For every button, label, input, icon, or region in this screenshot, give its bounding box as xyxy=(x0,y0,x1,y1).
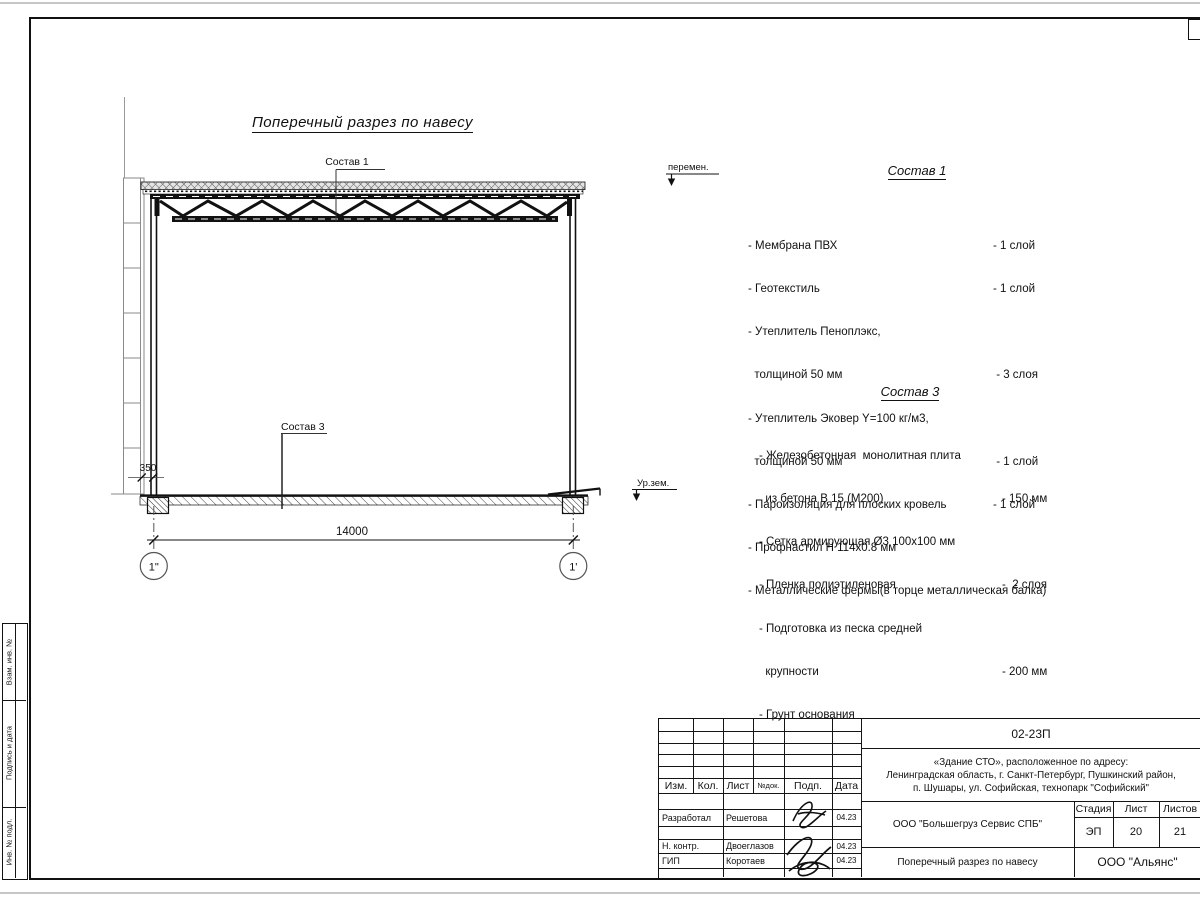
drawing-sheet: Поперечный разрез по навесу xyxy=(0,0,1200,900)
roof-layers xyxy=(141,182,585,194)
list-item: - Железобетонная монолитная плита xyxy=(759,449,961,463)
title-block: Изм. Кол. Лист №док. Подп. Дата Разработ… xyxy=(658,718,1200,880)
peremen-label: перемен. xyxy=(668,162,709,173)
list-item: - Подготовка из песка средней xyxy=(759,622,961,636)
dim-350-label: 350 xyxy=(140,463,157,474)
adjacent-wall xyxy=(111,97,144,494)
signature-razrabotal xyxy=(793,802,826,828)
list-item: - Геотекстиль- 1 слой xyxy=(748,282,1046,296)
roof-truss xyxy=(150,194,580,222)
list-item: толщиной 50 мм - 3 слоя xyxy=(748,368,1046,382)
level-mark-ground: Ур.зем. xyxy=(632,478,677,501)
list-item: - Пленка полиэтиленовая- 2 слоя xyxy=(759,578,961,592)
sostav3-heading: Состав 3 xyxy=(845,384,975,401)
list-item: крупности- 200 мм xyxy=(759,665,961,679)
list-item: из бетона В 15 (М200)- 150 мм xyxy=(759,492,961,506)
axis-left-label: 1" xyxy=(149,562,159,574)
dim-14000-label: 14000 xyxy=(336,526,368,538)
dimension-14000: 14000 1" 1' xyxy=(140,506,587,580)
signature-gip xyxy=(787,838,831,876)
list-item: - Мембрана ПВХ- 1 слой xyxy=(748,239,1046,253)
level-mark-peremen: перемен. xyxy=(666,162,719,186)
callout-sostav1-label: Состав 1 xyxy=(325,156,369,168)
sostav3-list: - Железобетонная монолитная плита из бет… xyxy=(759,420,961,751)
signatures xyxy=(659,719,1199,877)
sostav1-heading: Состав 1 xyxy=(852,163,982,180)
left-margin-column: Взам. инв. № Подпись и дата Инв. № подл. xyxy=(2,623,28,880)
podpis-data-cell: Подпись и дата xyxy=(3,700,15,807)
left-footing xyxy=(148,498,169,514)
callout-sostav3-label: Состав 3 xyxy=(281,421,325,433)
floor-slab xyxy=(140,489,600,514)
vzam-inv-cell: Взам. инв. № xyxy=(3,624,15,700)
list-item: - Утеплитель Пеноплэкс, xyxy=(748,325,1046,339)
list-item: - Сетка армирующая Ø3 100х100 мм xyxy=(759,535,961,549)
columns xyxy=(151,199,576,505)
ur-zem-label: Ур.зем. xyxy=(637,478,669,489)
axis-right-label: 1' xyxy=(569,562,577,574)
inv-podl-cell: Инв. № подл. xyxy=(3,807,15,879)
